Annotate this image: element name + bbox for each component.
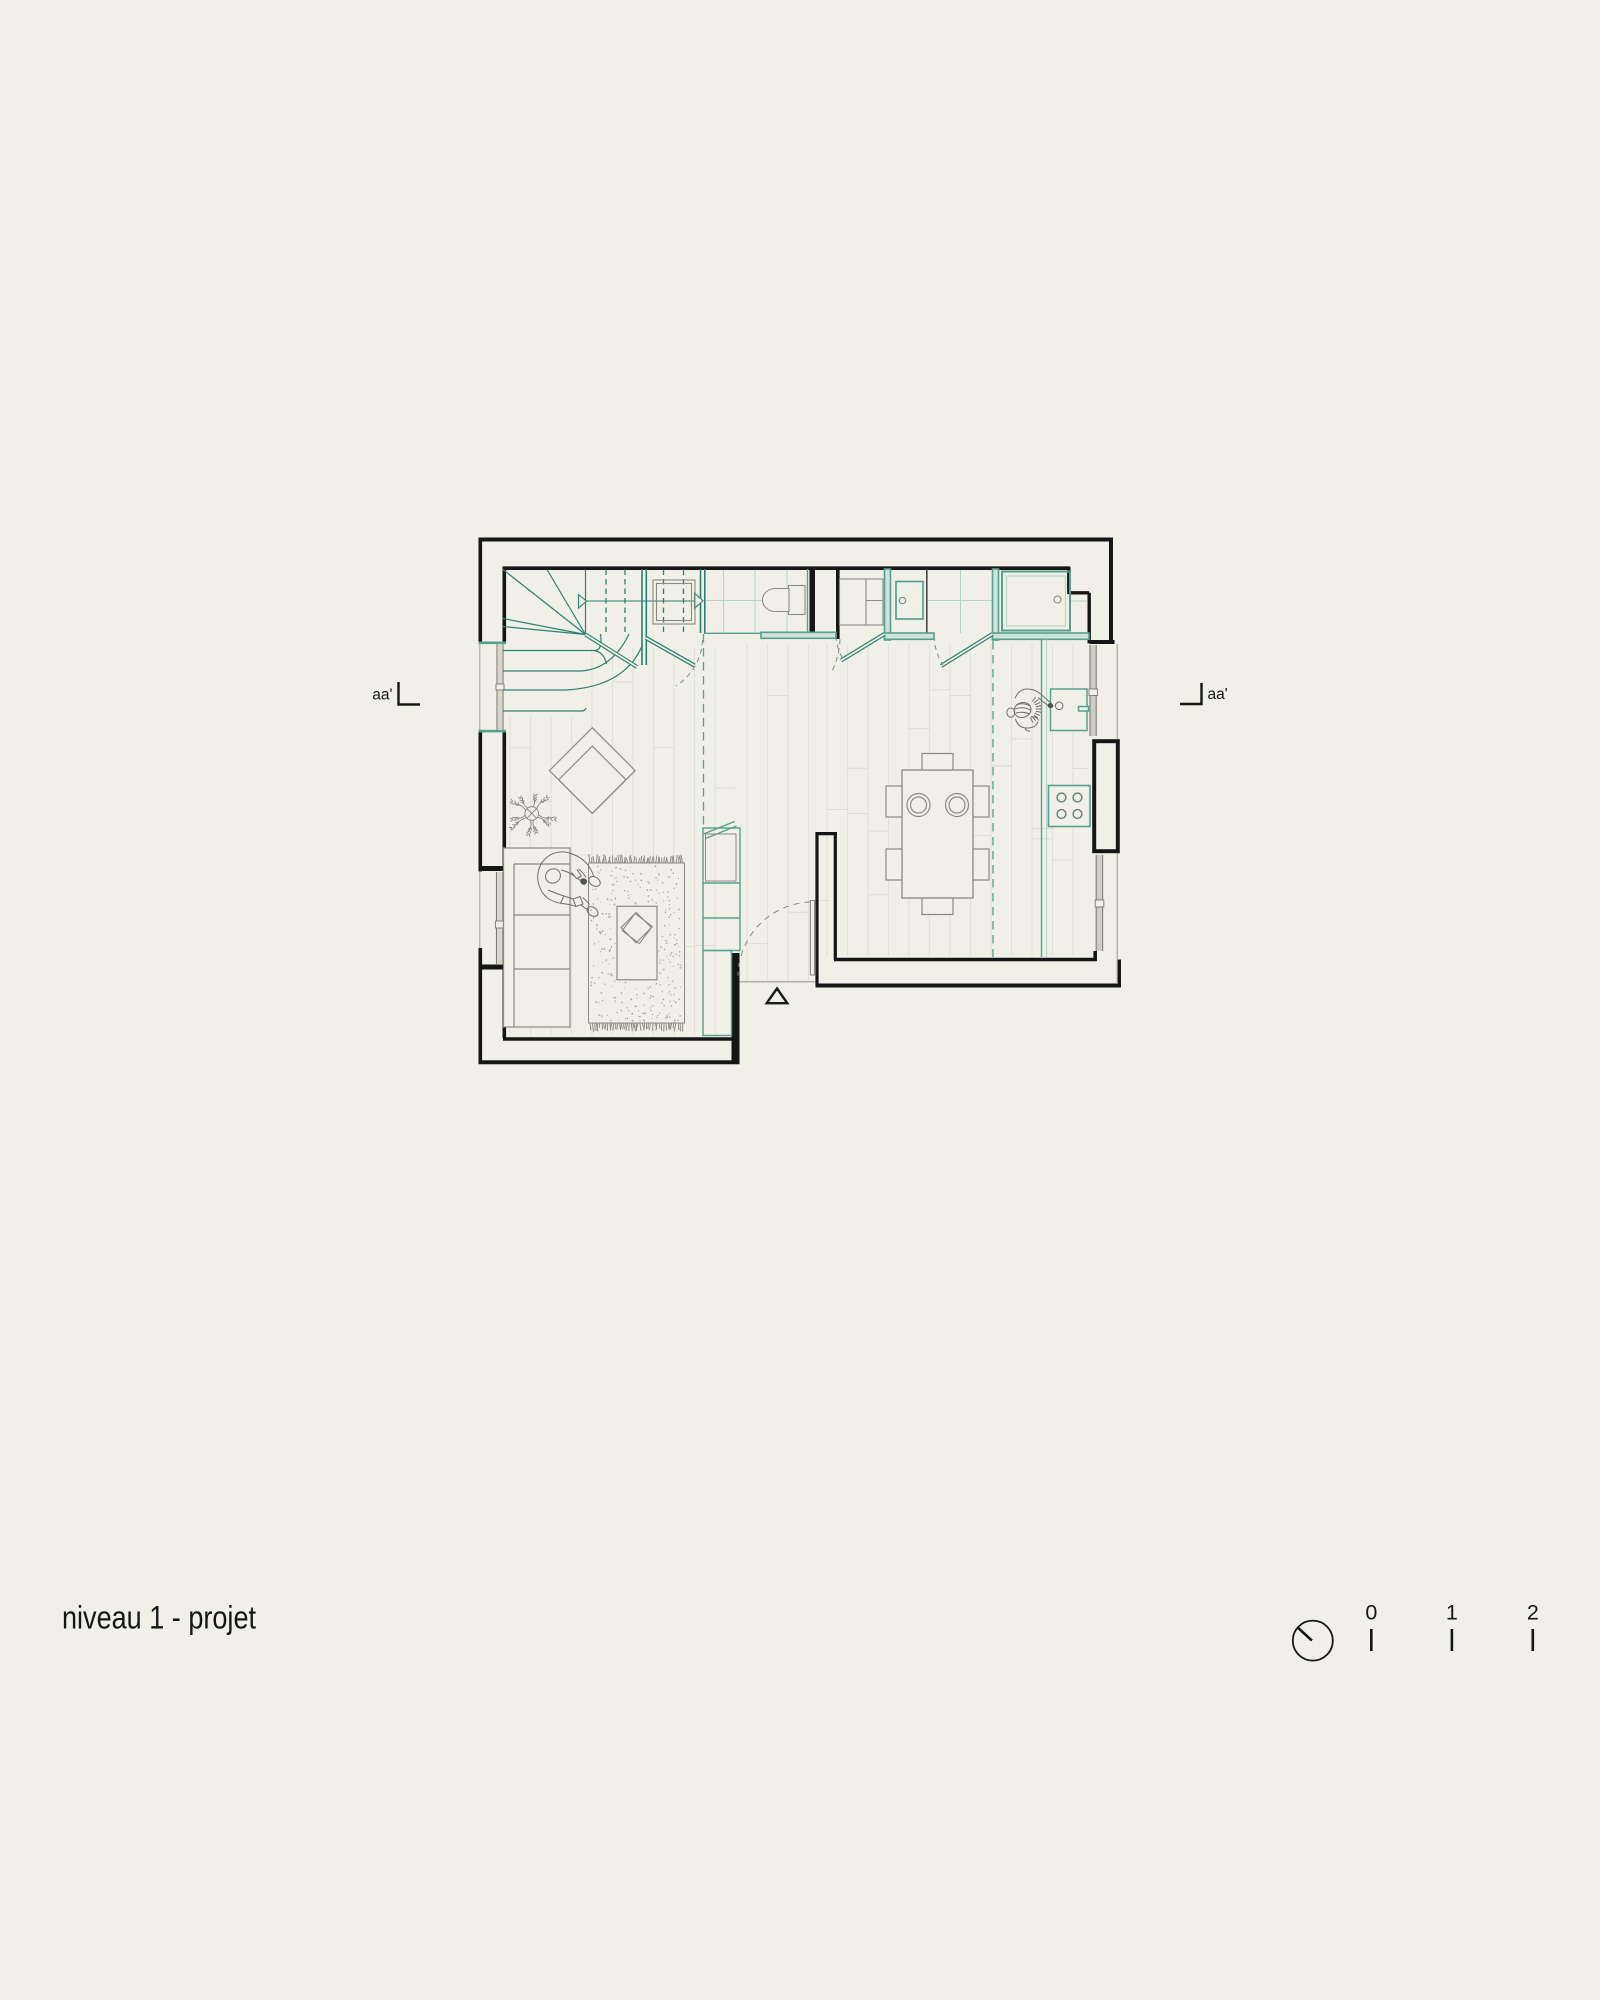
svg-text:2: 2 <box>1527 1601 1539 1625</box>
svg-text:1: 1 <box>1446 1601 1458 1625</box>
svg-text:niveau 1 - projet: niveau 1 - projet <box>62 1600 256 1636</box>
svg-text:0: 0 <box>1365 1601 1377 1625</box>
svg-text:aa': aa' <box>1208 686 1228 703</box>
svg-text:aa': aa' <box>372 687 392 704</box>
